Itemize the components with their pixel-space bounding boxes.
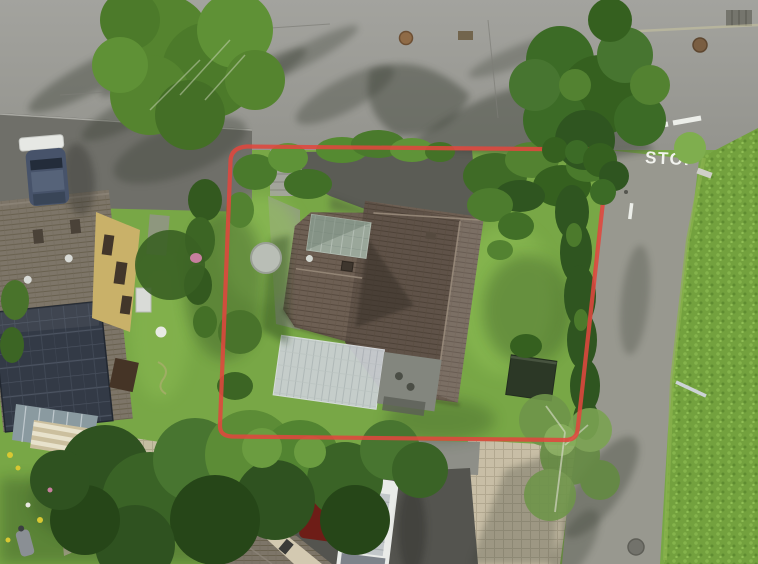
aerial-photo: STOP [0, 0, 758, 564]
drain-grate [458, 31, 473, 40]
manhole-cover [693, 38, 707, 52]
garden-shed [506, 355, 557, 401]
pink-flowers [190, 253, 202, 263]
garden-ball [156, 327, 167, 338]
roof-window [70, 219, 81, 234]
neighbor-house-west [0, 190, 151, 458]
roof-hatch [425, 232, 436, 240]
manhole-cover [400, 32, 413, 45]
trampoline [251, 243, 281, 273]
road-spot [624, 190, 628, 194]
main-house [271, 192, 486, 421]
manhole-cover [628, 539, 644, 555]
roof-window [33, 229, 44, 244]
aerial-photo-canvas: STOP [0, 0, 758, 564]
chimney [341, 261, 353, 271]
light-bush-field-edge [674, 132, 706, 164]
storm-grate [726, 10, 752, 26]
